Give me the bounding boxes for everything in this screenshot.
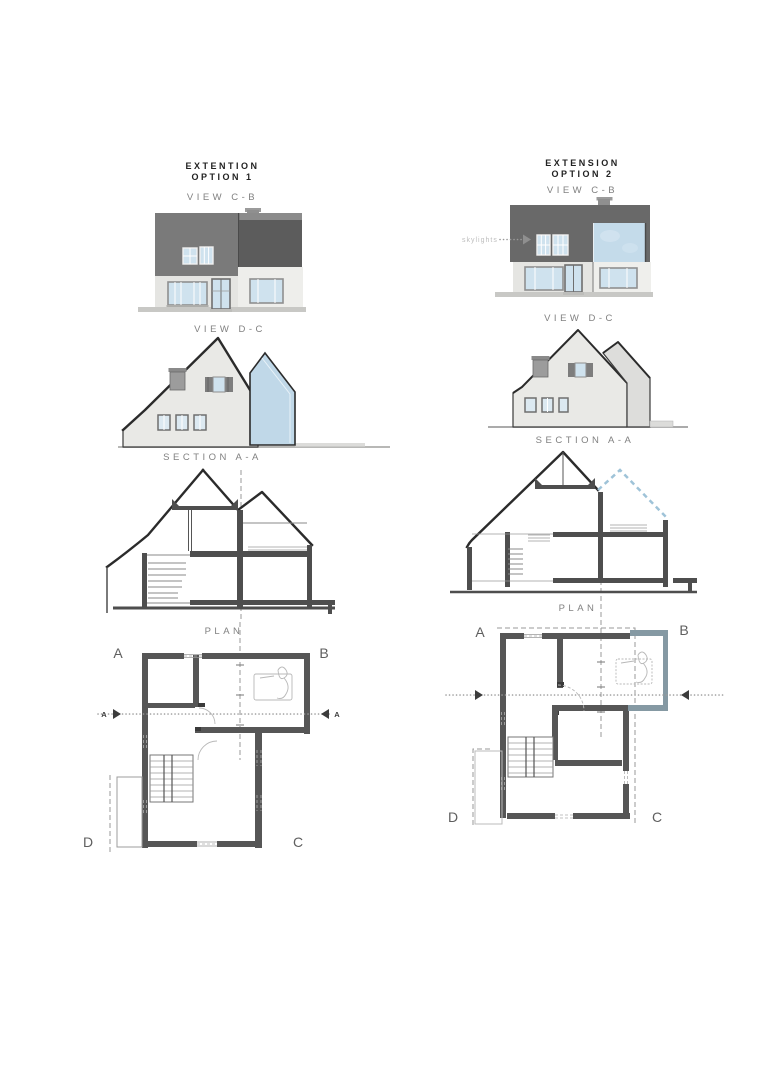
extension-window [250,279,283,303]
bottom-wall-right [217,841,262,847]
section-cut [107,470,335,622]
main-roof [155,213,240,277]
small-windows [158,415,206,430]
interior-wall-vertical [557,635,563,688]
attic-floor [535,485,595,489]
front-door [210,279,232,312]
roof-windows [537,235,568,255]
option2-title-line2: OPTION 2 [490,169,675,180]
porch-outline [117,777,142,847]
plan-corner-a: A [113,645,123,661]
plan-corner-b: B [679,622,688,638]
porch-outline [475,751,502,824]
ground-floor-window-left [525,267,563,290]
option2-section-label: SECTION A-A [475,435,695,446]
attic-floor [172,506,238,510]
chimney [533,360,548,377]
interior-horizontal-wall [555,760,622,766]
left-wall [142,653,148,848]
option2-view-cb-label: VIEW C-B [490,185,675,196]
option2-title-line1: EXTENSION [490,158,675,169]
stairs [508,535,550,574]
centerline [236,622,244,760]
section-arrow-left [113,709,121,719]
mid-horizontal-wall [552,705,628,711]
porch-slab [673,578,697,583]
plan-corner-b: B [319,645,328,661]
door-jamb [557,682,564,687]
front-elevation: skylights [462,197,653,297]
first-floor-slab [190,551,312,557]
option2-plan-drawing: A B C D [438,612,733,847]
porch-post [688,583,692,592]
left-roof-right-slope [203,470,238,510]
left-wall [500,633,506,818]
bottom-wall-left [507,813,555,819]
ground-slab [553,578,668,583]
option1-section-label: SECTION A-A [105,452,320,463]
plan-corner-c: C [652,809,662,825]
option2-section-drawing [442,448,702,612]
bed-sketch [254,667,292,700]
chimney-cap [532,356,550,360]
window-symbols [144,655,262,847]
top-wall-right [202,653,310,659]
option1-title-line1: EXTENTION [130,161,315,172]
porch-post [328,605,332,614]
bed-sketch [616,652,652,684]
mid-horizontal-wall [195,727,310,733]
stairs [508,737,553,777]
window-symbols [502,635,628,819]
first-floor-slab [553,532,668,537]
door-swing [198,741,217,760]
stairs [150,755,193,802]
option2-title: EXTENSION OPTION 2 [490,158,675,180]
chimney-cap [169,368,187,372]
ridge-strip [240,213,302,221]
front-elevation [138,208,306,312]
side-elevation [488,330,688,427]
extension-roof-dark [238,220,302,267]
plan-corner-a: A [475,624,485,640]
bottom-wall-right [573,813,630,819]
section-arrow-right [681,690,689,700]
option2-view-dc-label: VIEW D-C [480,313,680,324]
top-wall-left [142,653,184,659]
option1-section-drawing [100,466,340,622]
bottom-wall-left [143,841,197,847]
large-glazing [593,223,646,262]
glazed-extension [250,353,295,445]
middle-wall [237,510,243,608]
section-line [446,690,723,700]
plan-corner-d: D [448,809,458,825]
stairs [148,563,186,598]
interior-wall-vertical [193,655,199,707]
drawing-sheet: EXTENTION OPTION 1 VIEW C-B [0,0,769,1087]
chimney [170,372,185,390]
house-gable [123,338,258,447]
section-arrow-left [475,690,483,700]
lower-right-wall [255,728,262,848]
option2-view-dc-drawing [478,324,703,431]
interior-wall-horizontal [143,703,195,708]
right-wall-lower [623,784,629,818]
left-interior-wall [142,553,147,608]
option1-view-dc-drawing [105,336,395,454]
top-wall-left [502,633,524,639]
ground-shadow [295,443,365,447]
section-arrow-right [321,709,329,719]
gable-window-shuttered [568,363,593,377]
section-marker-right: A [334,710,340,719]
option1-plan-drawing: A A A B C D [78,620,358,870]
plan-corner-c: C [293,834,303,850]
ground-slab [190,600,312,605]
section-line: A A [98,709,340,719]
option1-view-cb-drawing [130,206,330,316]
right-wall [663,520,668,587]
option1-title-line2: OPTION 1 [130,172,315,183]
centerline [597,612,605,740]
floor-plan: A B C D [446,612,723,825]
glazed-roof-dashed [598,470,667,518]
door-jamb [195,727,201,731]
bedroom-right-wall [304,653,310,734]
ground-floor-window-left [167,282,209,307]
middle-wall [598,492,603,583]
option2-view-cb-drawing: skylights [450,196,670,301]
left-wall [467,547,472,590]
right-roof [238,492,312,545]
option1-view-cb-label: VIEW C-B [130,192,315,203]
section-cut [450,452,697,612]
option1-view-dc-label: VIEW D-C [130,324,330,335]
floor-plan: A A A B C D [83,622,340,852]
side-elevation [118,338,390,447]
door-swing [199,708,215,724]
shelf-lines [610,525,647,531]
option1-title: EXTENTION OPTION 1 [130,161,315,183]
door-jamb [198,703,205,707]
plan-corner-d: D [83,834,93,850]
new-extension-walls [628,630,668,711]
small-windows [525,398,568,412]
top-wall-right [542,633,630,639]
skylights-note: skylights [462,237,498,244]
extension-window [600,268,637,288]
front-door [563,265,584,295]
gable-window-shuttered [205,377,233,392]
right-wall-upper [623,711,629,771]
porch-slab [312,600,335,605]
step-block [650,421,673,427]
section-marker-left: A [101,710,107,719]
